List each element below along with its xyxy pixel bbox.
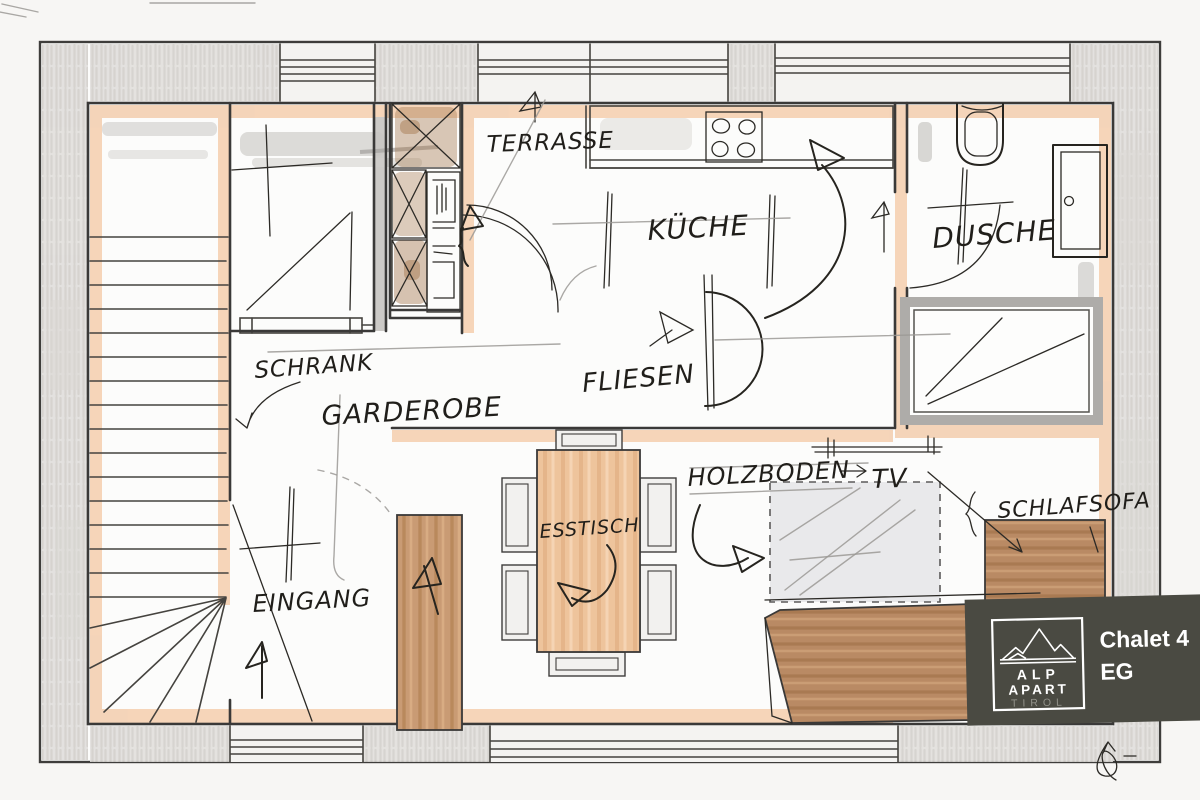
chair	[502, 565, 537, 640]
pencil-shading	[918, 122, 932, 162]
badge: ALP APART TIROL Chalet 4 EG	[965, 594, 1200, 725]
logo-line1: ALP	[1017, 666, 1060, 683]
chair	[640, 565, 676, 640]
tv-label: TV	[871, 464, 909, 495]
window	[230, 726, 363, 762]
badge-subtitle: EG	[1100, 658, 1134, 685]
chair	[549, 652, 625, 676]
sofa-seat	[765, 604, 972, 723]
chair	[556, 430, 622, 452]
dining-table	[537, 450, 640, 652]
rug	[770, 482, 940, 602]
pencil-shading	[108, 150, 208, 159]
floor-plan-drawing: TERRASSE KÜCHE DUSCHE SCHRANK GARDEROBE …	[0, 0, 1200, 800]
window	[775, 44, 1070, 101]
chair	[502, 478, 537, 552]
logo-line3: TIROL	[1011, 696, 1067, 709]
logo-line2: APART	[1008, 681, 1069, 697]
window	[490, 726, 898, 762]
window	[478, 44, 728, 101]
shower-tray	[905, 302, 1098, 420]
chair	[640, 478, 676, 552]
badge-title: Chalet 4	[1099, 625, 1189, 653]
floor-plan-sheet: TERRASSE KÜCHE DUSCHE SCHRANK GARDEROBE …	[0, 0, 1200, 800]
pencil-shading	[102, 122, 217, 136]
terrasse-label: TERRASSE	[486, 128, 614, 158]
wood-plank	[397, 515, 462, 730]
kueche-label: KÜCHE	[647, 208, 750, 247]
window	[280, 44, 375, 101]
